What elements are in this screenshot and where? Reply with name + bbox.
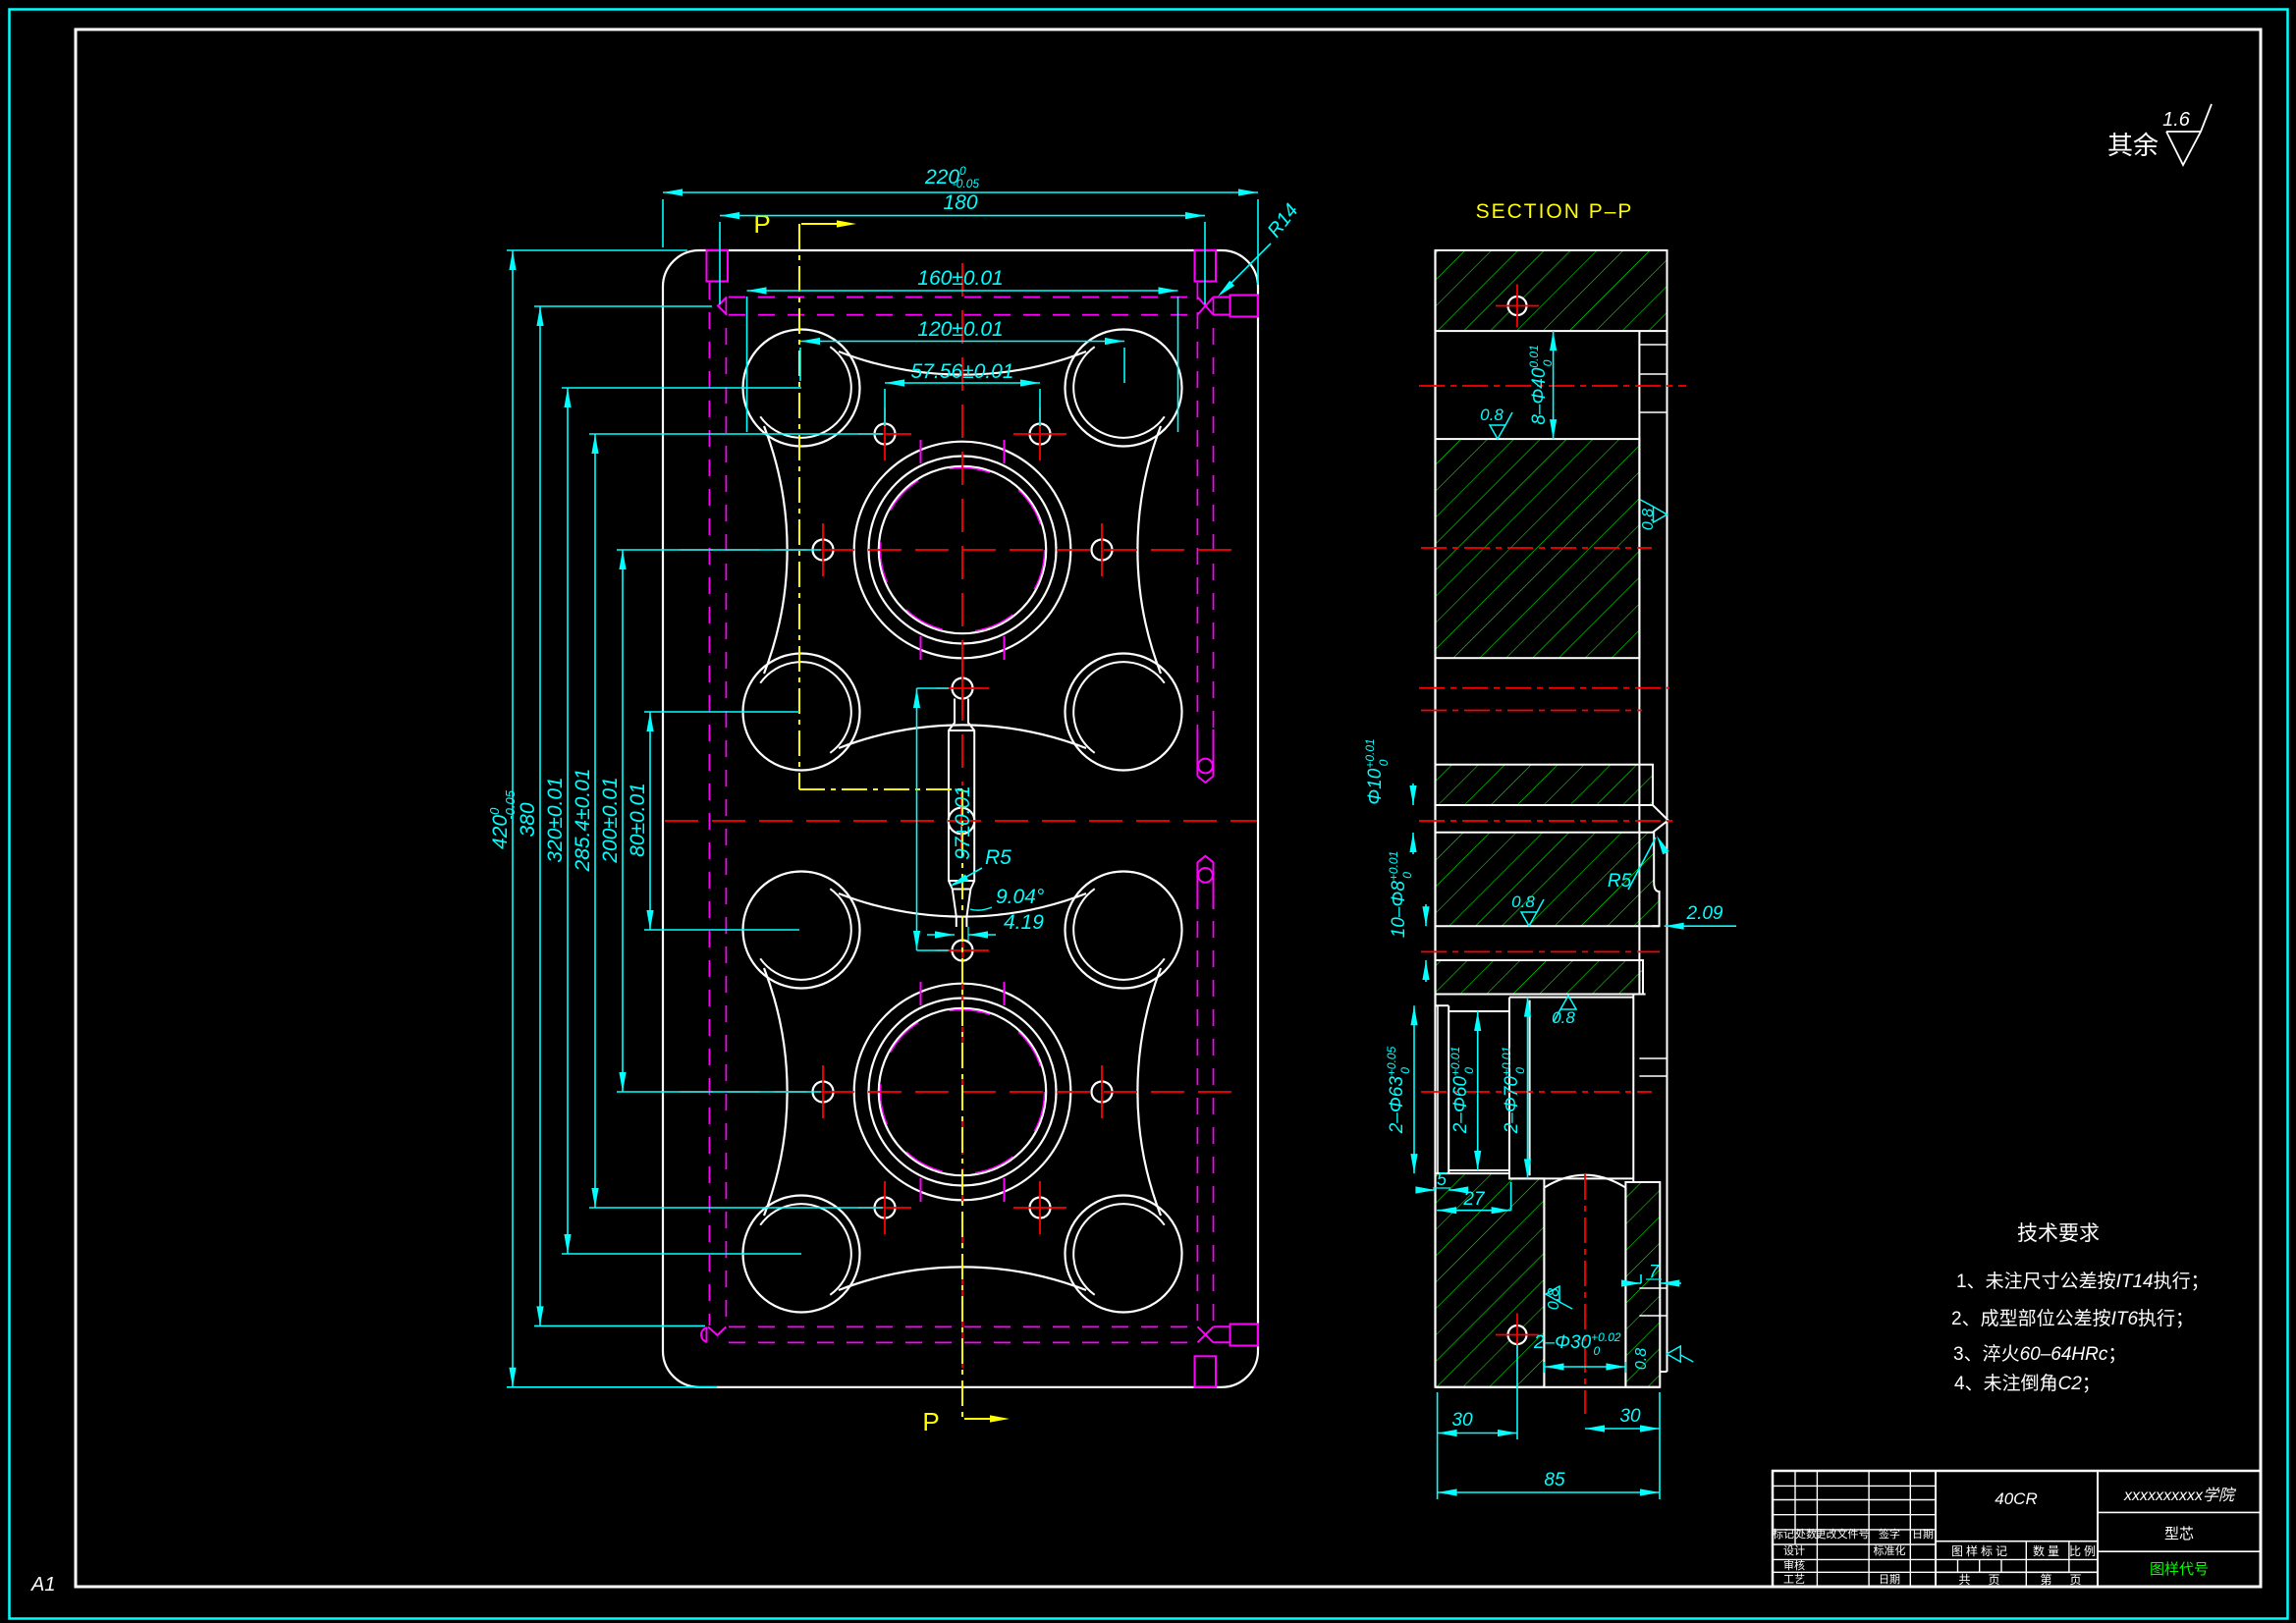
svg-text:SECTION P–P: SECTION P–P <box>1476 200 1634 223</box>
svg-text:97±0.01: 97±0.01 <box>952 785 974 860</box>
svg-text:0.8: 0.8 <box>1633 1348 1650 1370</box>
svg-text:工艺: 工艺 <box>1783 1573 1805 1586</box>
svg-text:标记: 标记 <box>1773 1527 1794 1541</box>
svg-text:日期: 日期 <box>1912 1528 1934 1541</box>
svg-text:数量: 数量 <box>2033 1543 2062 1558</box>
svg-text:第 页: 第 页 <box>2040 1573 2084 1587</box>
svg-text:1、未注尺寸公差按IT14执行；: 1、未注尺寸公差按IT14执行； <box>1956 1271 2210 1292</box>
svg-text:处数: 处数 <box>1795 1528 1817 1541</box>
svg-text:3、淬火60–64HRc；: 3、淬火60–64HRc； <box>1953 1343 2126 1365</box>
svg-text:200±0.01: 200±0.01 <box>599 777 622 863</box>
svg-text:4.19: 4.19 <box>1004 911 1044 934</box>
svg-text:80±0.01: 80±0.01 <box>627 783 649 857</box>
svg-text:日期: 日期 <box>1879 1573 1900 1586</box>
svg-text:27: 27 <box>1462 1189 1486 1210</box>
svg-text:5: 5 <box>1437 1169 1448 1189</box>
svg-text:9.04°: 9.04° <box>996 886 1044 908</box>
svg-text:1.6: 1.6 <box>2162 109 2191 131</box>
svg-text:30: 30 <box>1619 1406 1641 1427</box>
svg-text:0.8: 0.8 <box>1546 1288 1562 1310</box>
svg-text:图样代号: 图样代号 <box>2150 1561 2209 1578</box>
svg-text:签字: 签字 <box>1879 1527 1900 1541</box>
svg-text:其余: 其余 <box>2107 131 2159 160</box>
svg-text:2.09: 2.09 <box>1686 903 1723 924</box>
svg-text:57.56±0.01: 57.56±0.01 <box>911 360 1014 383</box>
svg-text:R5: R5 <box>1608 871 1632 892</box>
svg-text:285.4±0.01: 285.4±0.01 <box>572 769 594 873</box>
svg-text:更改文件号: 更改文件号 <box>1816 1527 1870 1541</box>
svg-text:型芯: 型芯 <box>2164 1526 2194 1542</box>
svg-text:380: 380 <box>517 802 539 837</box>
svg-text:图样标记: 图样标记 <box>1951 1543 2010 1558</box>
svg-text:160±0.01: 160±0.01 <box>917 267 1003 290</box>
svg-text:0.8: 0.8 <box>1480 406 1503 424</box>
svg-text:40CR: 40CR <box>1995 1489 2037 1508</box>
svg-text:0.8: 0.8 <box>1511 893 1535 911</box>
svg-text:R5: R5 <box>985 846 1011 869</box>
svg-text:7: 7 <box>1649 1262 1660 1281</box>
svg-text:85: 85 <box>1544 1470 1565 1490</box>
svg-text:标准化: 标准化 <box>1874 1543 1906 1557</box>
svg-text:4、未注倒角C2；: 4、未注倒角C2； <box>1954 1373 2101 1394</box>
svg-text:0.8: 0.8 <box>1640 509 1657 530</box>
svg-text:A1: A1 <box>30 1574 55 1596</box>
svg-text:设计: 设计 <box>1783 1544 1805 1557</box>
svg-text:比例: 比例 <box>2069 1544 2099 1558</box>
svg-text:120±0.01: 120±0.01 <box>917 318 1003 341</box>
svg-text:180: 180 <box>943 191 977 214</box>
svg-text:P: P <box>922 1407 939 1436</box>
svg-text:P: P <box>753 209 770 239</box>
svg-text:技术要求: 技术要求 <box>2017 1222 2100 1245</box>
svg-text:2、成型部位公差按IT6执行；: 2、成型部位公差按IT6执行； <box>1951 1308 2194 1329</box>
svg-text:320±0.01: 320±0.01 <box>544 777 567 862</box>
svg-text:共 页: 共 页 <box>1958 1573 2002 1587</box>
svg-text:30: 30 <box>1451 1410 1473 1431</box>
svg-text:xxxxxxxxxx学院: xxxxxxxxxx学院 <box>2123 1487 2237 1504</box>
svg-text:0.8: 0.8 <box>1552 1008 1575 1027</box>
svg-text:审核: 审核 <box>1783 1558 1805 1572</box>
